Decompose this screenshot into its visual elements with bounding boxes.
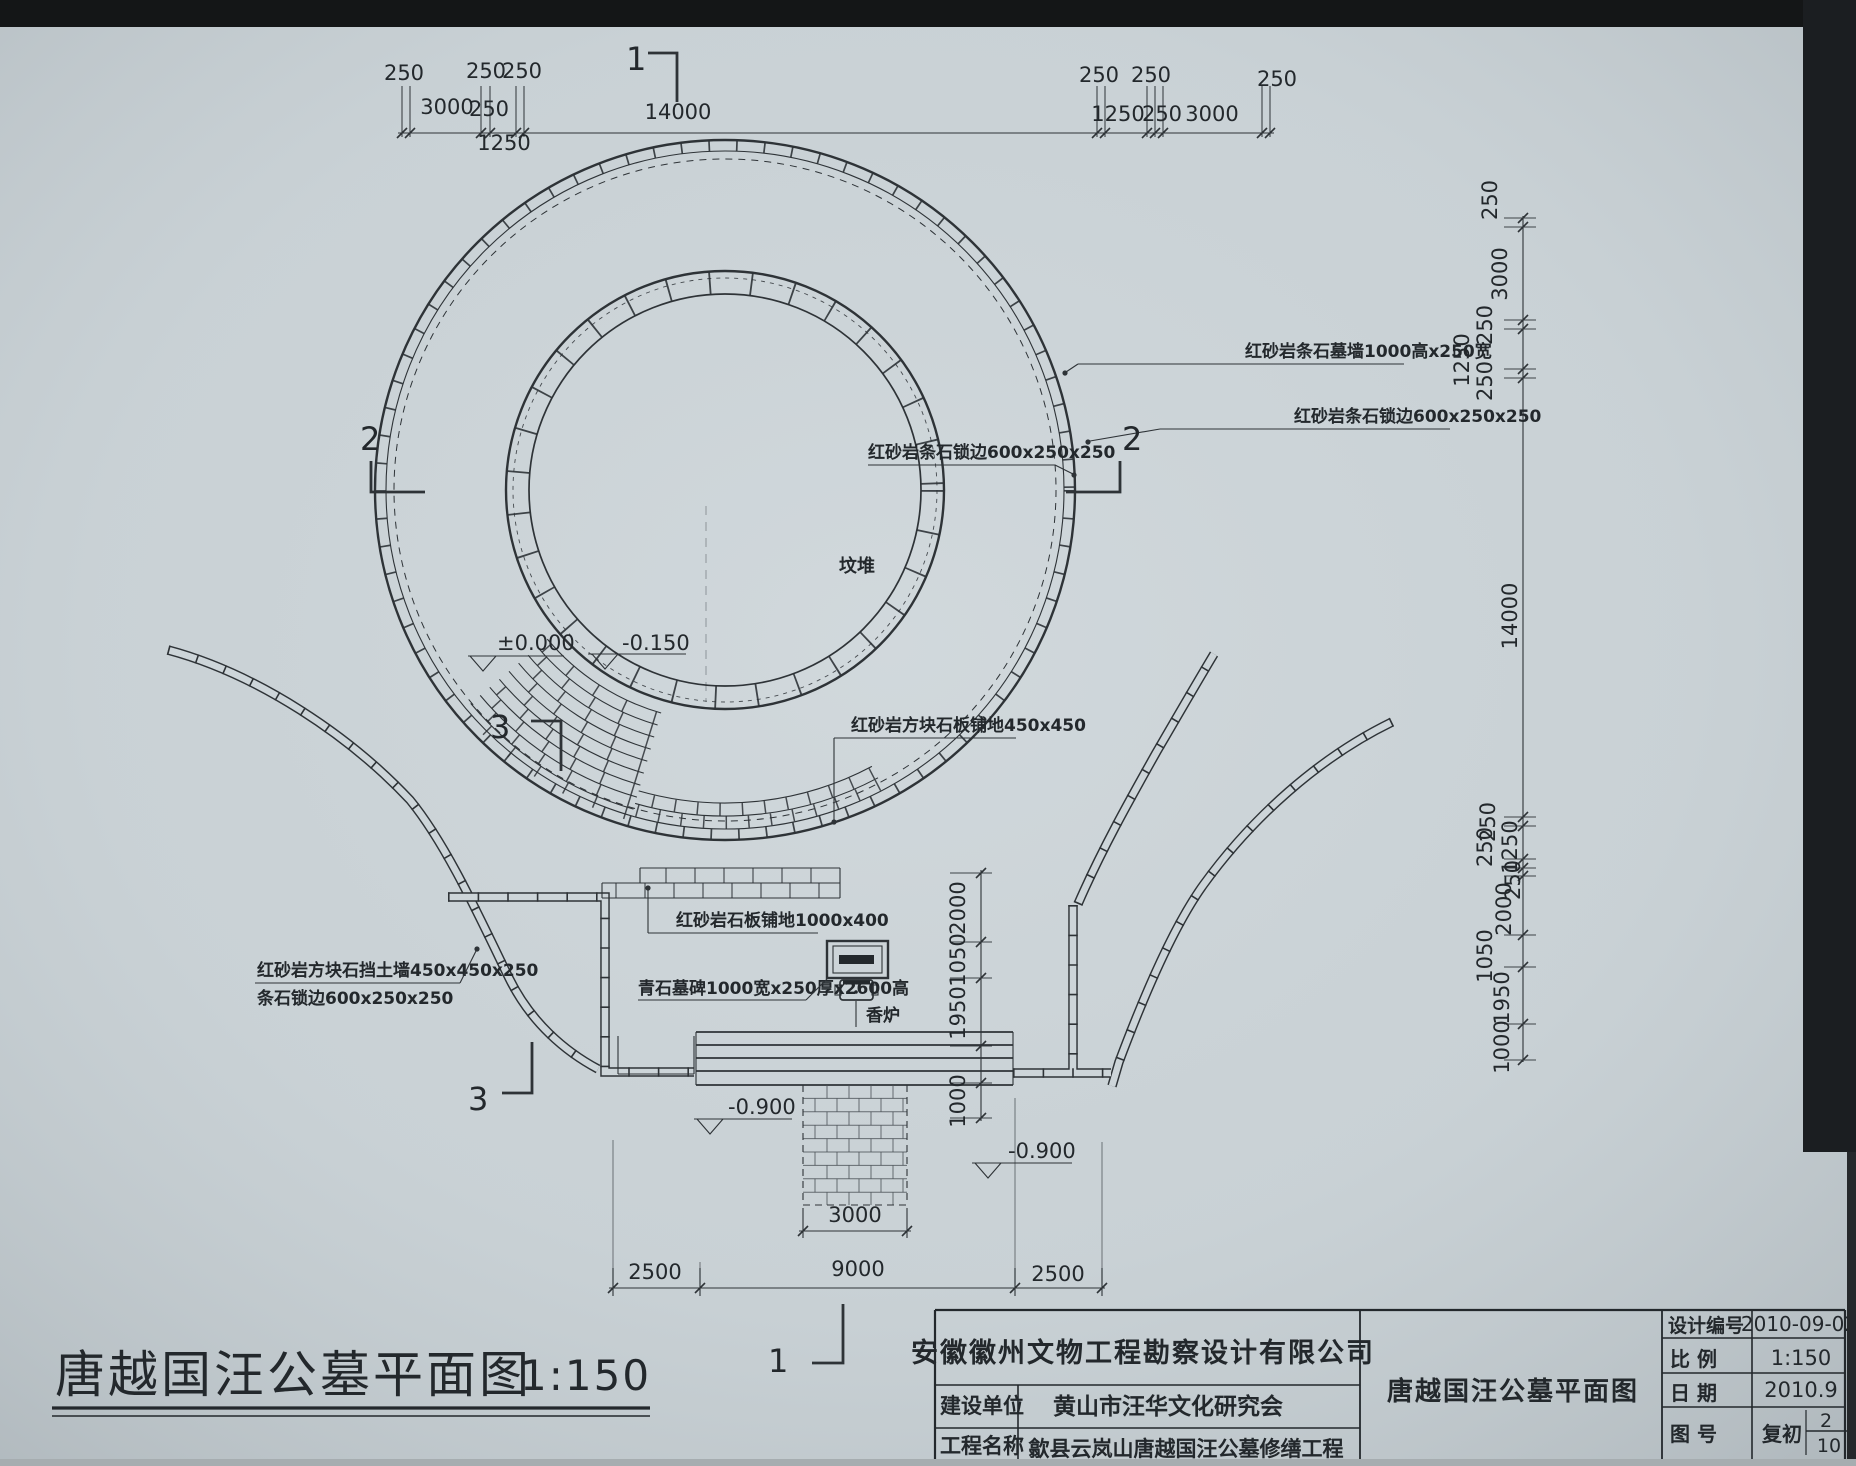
mound-label: 坟堆 xyxy=(839,555,875,577)
scale-value: 1:150 xyxy=(1771,1346,1832,1370)
project-value: 歙县云岚山唐越国汪公墓修缮工程 xyxy=(1028,1437,1344,1461)
sheet-scale-text: 1:150 xyxy=(520,1351,651,1400)
scanned-drawing-sheet: 2503000250250125025014000250125025025030… xyxy=(0,0,1856,1466)
sheet-prefix: 复初 xyxy=(1761,1422,1802,1446)
dim-label: 3000 xyxy=(1488,247,1512,300)
drawing-name: 唐越国汪公墓平面图 xyxy=(1387,1376,1639,1407)
scan-edge-right-low xyxy=(1847,1152,1856,1466)
date-label: 日 期 xyxy=(1670,1381,1717,1405)
scan-edge-bottom xyxy=(0,1459,1856,1466)
dim-label: 3000 xyxy=(1185,102,1238,126)
dim-label: 250 xyxy=(1473,361,1497,401)
dim-label: 9000 xyxy=(831,1257,884,1281)
date-value: 2010.9 xyxy=(1764,1378,1837,1402)
material-label: 红砂岩条石墓墙1000高x250宽 xyxy=(1245,341,1492,362)
dim-label: 1950 xyxy=(1490,971,1514,1024)
material-label: 青石墓碑1000宽x250厚x2600高 xyxy=(638,978,909,999)
elevation-value: -0.900 xyxy=(1008,1139,1076,1163)
sheet-no-label: 图 号 xyxy=(1670,1422,1717,1446)
dim-label: 250 xyxy=(384,61,424,85)
dim-label: 2500 xyxy=(1031,1262,1084,1286)
leader-dot xyxy=(474,946,479,951)
client-value: 黄山市汪华文化研究会 xyxy=(1053,1393,1283,1420)
dim-label: 1050 xyxy=(946,933,970,986)
dim-label: 250 xyxy=(1478,180,1502,220)
material-label: 红砂岩条石锁边600x250x250 xyxy=(868,442,1116,463)
material-label: 香炉 xyxy=(866,1005,900,1026)
dim-label: 250 xyxy=(469,97,509,121)
sheet-title-text: 唐越国汪公墓平面图 xyxy=(55,1346,532,1404)
material-label: 红砂岩条石锁边600x250x250 xyxy=(1294,406,1542,427)
dim-label: 1250 xyxy=(477,131,530,155)
section-marker-number: 2 xyxy=(1122,420,1142,458)
material-label: 条石锁边600x250x250 xyxy=(256,988,454,1009)
dim-label: 2000 xyxy=(1492,882,1516,935)
leader-dot xyxy=(831,819,836,824)
scan-edge-top xyxy=(0,0,1856,27)
section-marker-number: 2 xyxy=(360,420,380,458)
dim-label: 3000 xyxy=(420,95,473,119)
leader-dot xyxy=(1071,472,1076,477)
scale-label: 比 例 xyxy=(1670,1347,1717,1371)
dim-label: 1950 xyxy=(946,986,970,1039)
dim-label: 250 xyxy=(1079,63,1119,87)
dim-label: 250 xyxy=(1473,305,1497,345)
dim-label: 250 xyxy=(466,59,506,83)
dim-label: 1000 xyxy=(946,1074,970,1127)
dim-label: 250 xyxy=(1473,827,1497,867)
material-label: 红砂岩石板铺地1000x400 xyxy=(676,910,889,931)
dim-label: 2000 xyxy=(946,881,970,934)
section-marker-number: 1 xyxy=(768,1342,788,1380)
material-label: 红砂岩方块石挡土墙450x450x250 xyxy=(257,960,539,981)
dim-label: 250 xyxy=(502,59,542,83)
elevation-value: -0.900 xyxy=(728,1095,796,1119)
project-label: 工程名称 xyxy=(940,1434,1024,1458)
elevation-value: ±0.000 xyxy=(497,631,575,655)
elevation-value: -0.150 xyxy=(622,631,690,655)
company-name: 安徽徽州文物工程勘察设计有限公司 xyxy=(911,1337,1375,1369)
material-label: 红砂岩方块石板铺地450x450 xyxy=(851,715,1086,736)
dim-label: 1000 xyxy=(1490,1020,1514,1073)
tomb-plan-drawing: 2503000250250125025014000250125025025030… xyxy=(0,0,1856,1466)
scan-edge-right xyxy=(1803,0,1856,1152)
dim-label: 250 xyxy=(1131,63,1171,87)
dim-label: 2500 xyxy=(628,1260,681,1284)
design-no-label: 设计编号 xyxy=(1668,1314,1744,1337)
dim-label: 3000 xyxy=(828,1203,881,1227)
leader-dot xyxy=(1062,370,1067,375)
design-no-value: 2010-09-02 xyxy=(1741,1312,1856,1336)
section-marker-number: 3 xyxy=(468,1080,488,1118)
section-marker-number: 1 xyxy=(626,40,646,78)
section-marker-number: 3 xyxy=(490,708,510,746)
dim-label: 14000 xyxy=(1498,583,1522,650)
sheet-num: 2 xyxy=(1820,1410,1832,1432)
client-label: 建设单位 xyxy=(940,1394,1024,1418)
dim-label: 250 xyxy=(1257,67,1297,91)
sheet-total: 10 xyxy=(1817,1435,1841,1457)
dim-label: 250 xyxy=(1142,102,1182,126)
dim-label: 14000 xyxy=(645,100,712,124)
leader-dot xyxy=(645,885,650,890)
dim-label: 1250 xyxy=(1091,102,1144,126)
